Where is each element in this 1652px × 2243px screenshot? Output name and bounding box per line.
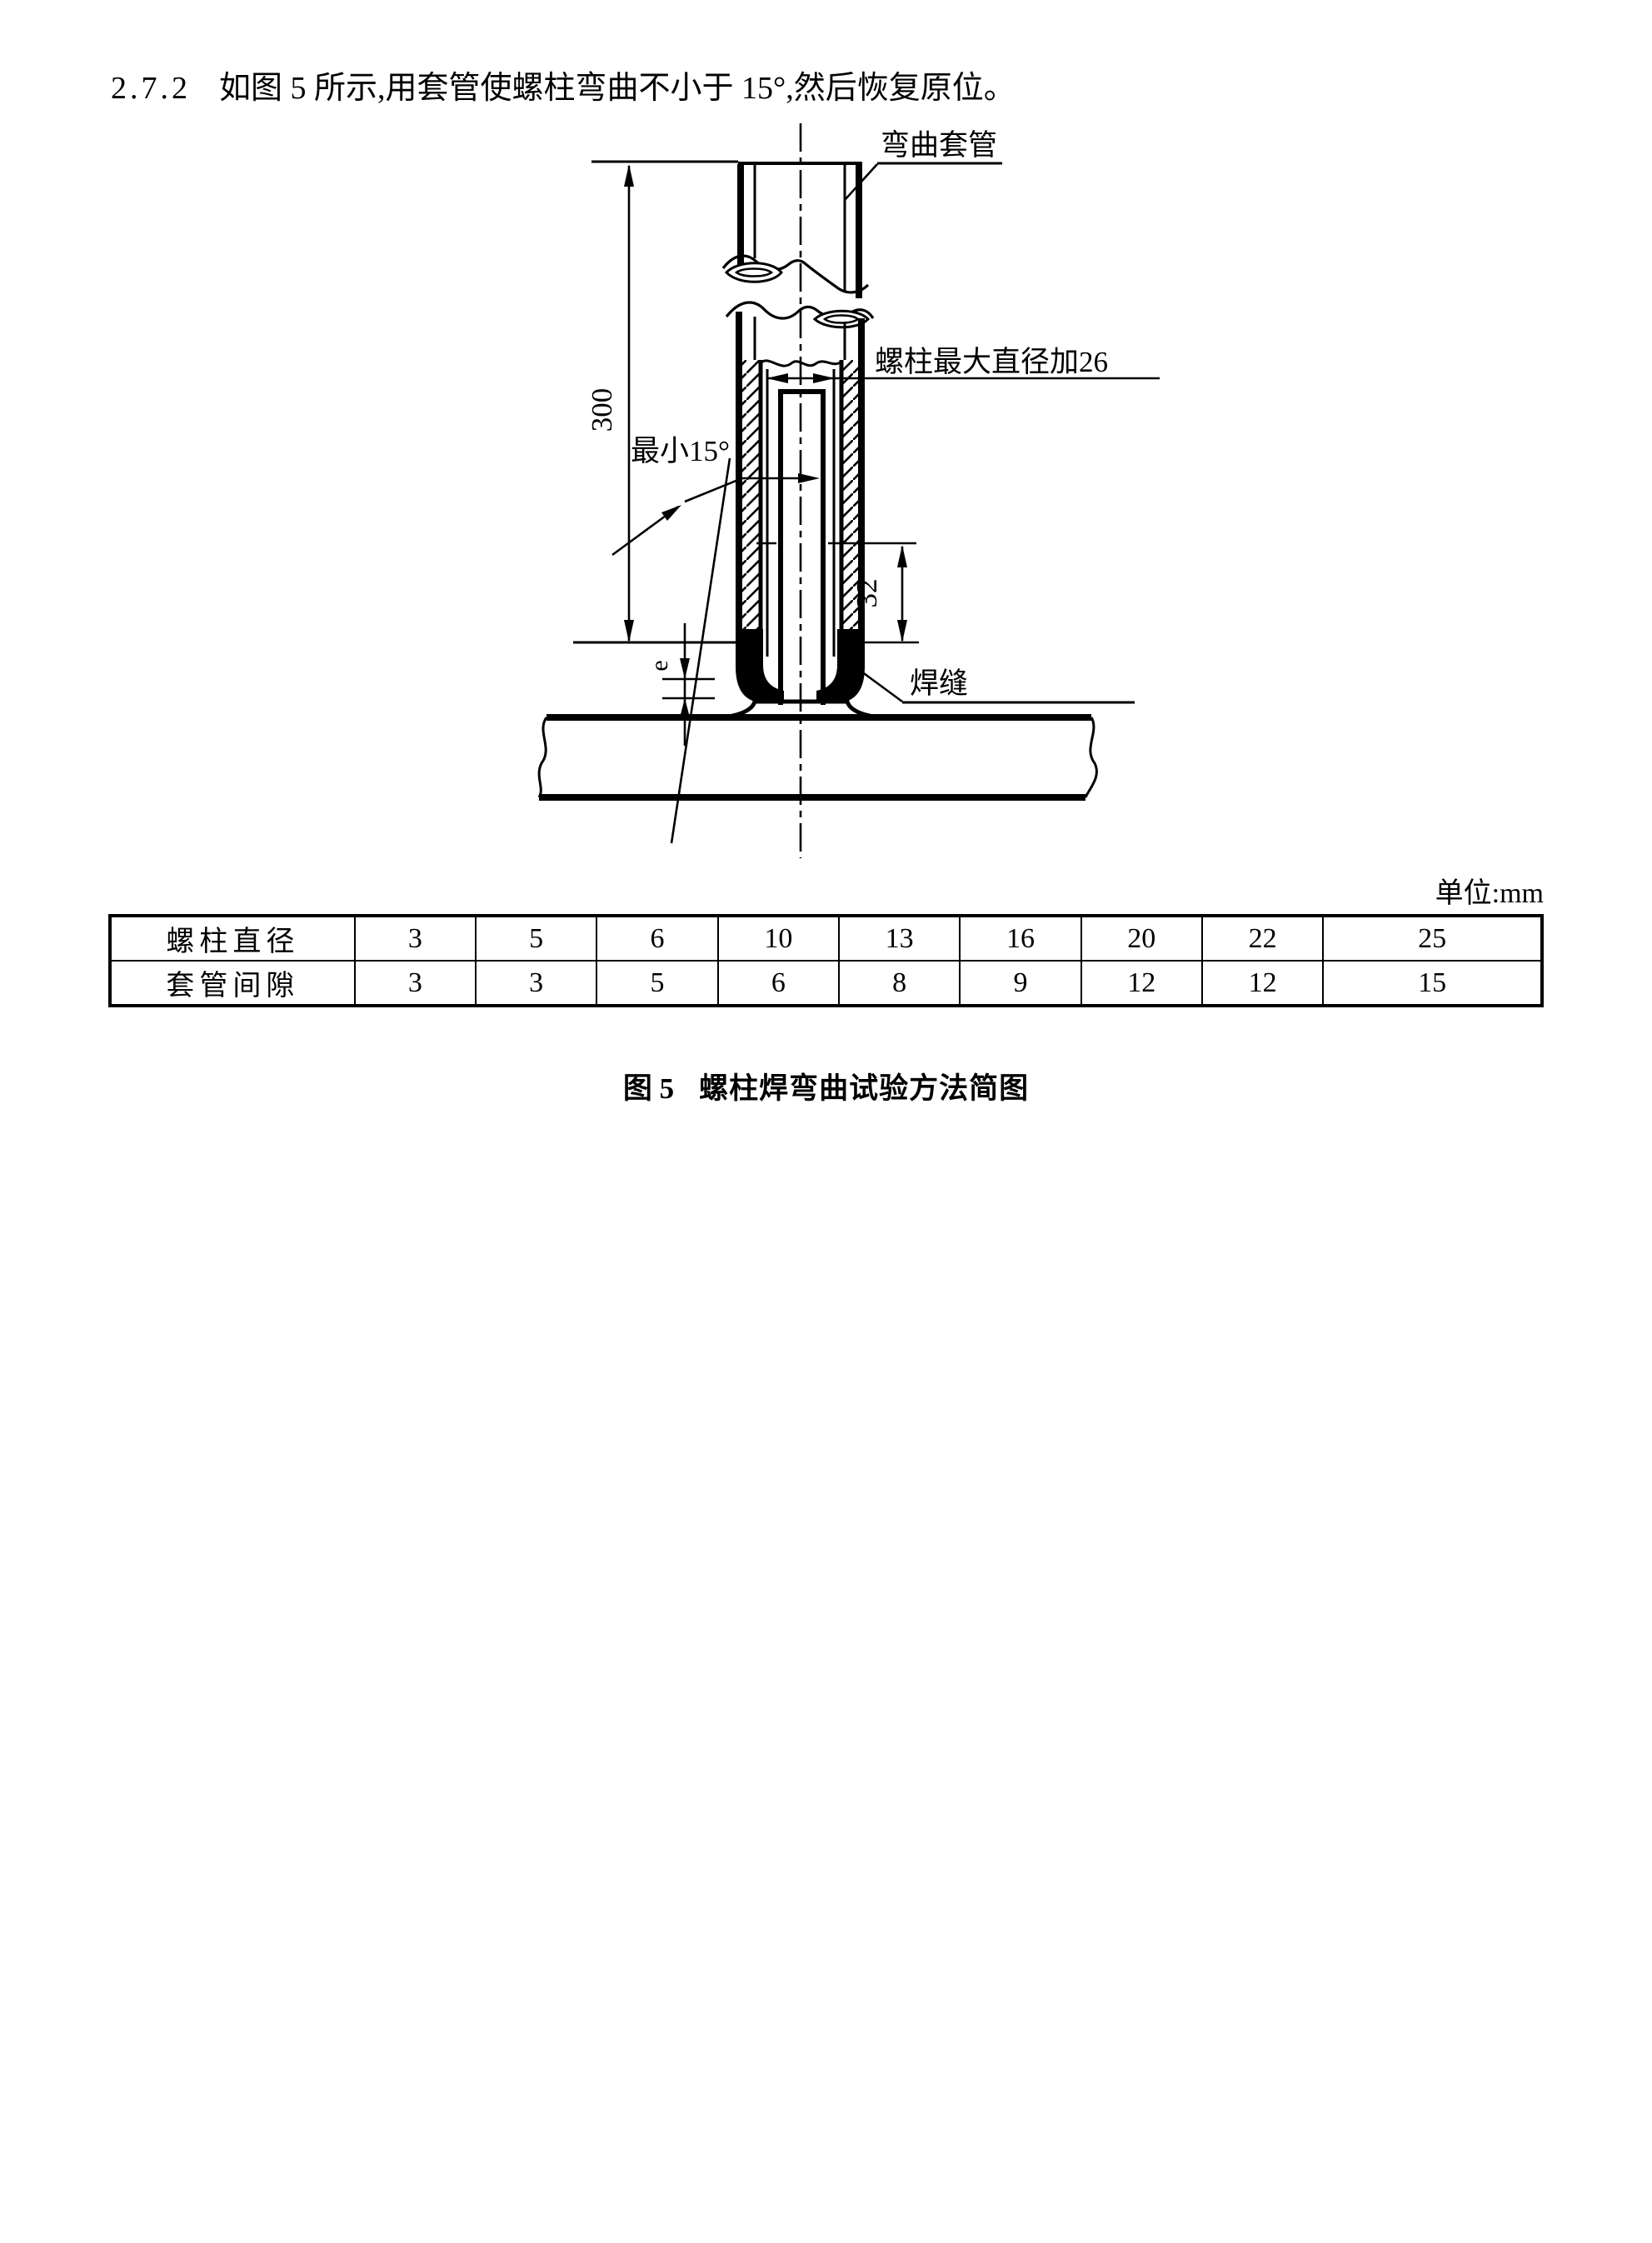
cell: 8 <box>839 961 960 1006</box>
bend-sleeve-label: 弯曲套管 <box>881 129 997 162</box>
cell: 12 <box>1081 961 1202 1006</box>
cell: 20 <box>1081 916 1202 961</box>
figure-diagram: 300 弯曲套管 <box>500 117 1216 867</box>
cell: 9 <box>960 961 1081 1006</box>
table-row-stud-diameter: 螺柱直径 3 5 6 10 13 16 20 22 25 <box>110 916 1542 961</box>
cell: 16 <box>960 916 1081 961</box>
row-label: 螺柱直径 <box>110 916 355 961</box>
figure-caption-text: 螺柱焊弯曲试验方法简图 <box>699 1072 1029 1105</box>
cell: 13 <box>839 916 960 961</box>
dimension-table: 螺柱直径 3 5 6 10 13 16 20 22 25 套管间隙 3 3 5 … <box>108 914 1544 1007</box>
figure-caption-number: 图 5 <box>623 1072 674 1105</box>
min-angle-annotation: 最小15° <box>612 435 820 843</box>
dim-32-label: 32 <box>851 579 883 608</box>
cell: 3 <box>355 961 476 1006</box>
table-row-sleeve-clearance: 套管间隙 3 3 5 6 8 9 12 12 15 <box>110 961 1542 1006</box>
cell: 12 <box>1202 961 1323 1006</box>
cell: 22 <box>1202 916 1323 961</box>
document-page: 2.7.2如图 5 所示,用套管使螺柱弯曲不小于 15°,然后恢复原位。 300 <box>0 0 1652 2243</box>
weld-label: 焊缝 <box>910 667 968 700</box>
cell: 5 <box>476 916 596 961</box>
bend-sleeve-callout: 弯曲套管 <box>845 129 1002 200</box>
bend-sleeve-upper <box>723 163 868 298</box>
base-plate <box>539 717 1096 797</box>
unit-label: 单位:mm <box>1435 870 1544 911</box>
cell: 6 <box>718 961 839 1006</box>
min-angle-label: 最小15° <box>631 435 730 467</box>
cell: 5 <box>596 961 717 1006</box>
cell: 25 <box>1323 916 1542 961</box>
cell: 15 <box>1323 961 1542 1006</box>
dimension-bore-dia: 螺柱最大直径加26 <box>766 346 1160 383</box>
cell: 3 <box>476 961 596 1006</box>
figure-caption: 图 5螺柱焊弯曲试验方法简图 <box>0 1065 1652 1107</box>
cell: 10 <box>718 916 839 961</box>
dim-300-label: 300 <box>586 388 618 432</box>
section-number: 2.7.2 <box>111 71 191 106</box>
cell: 3 <box>355 916 476 961</box>
row-label: 套管间隙 <box>110 961 355 1006</box>
weld-callout: 焊缝 <box>855 667 1135 702</box>
section-heading: 2.7.2如图 5 所示,用套管使螺柱弯曲不小于 15°,然后恢复原位。 <box>111 68 1016 108</box>
bore-dia-label: 螺柱最大直径加26 <box>875 346 1108 378</box>
cell: 6 <box>596 916 717 961</box>
section-text: 如图 5 所示,用套管使螺柱弯曲不小于 15°,然后恢复原位。 <box>219 71 1016 106</box>
dim-e-label: e <box>646 660 673 671</box>
